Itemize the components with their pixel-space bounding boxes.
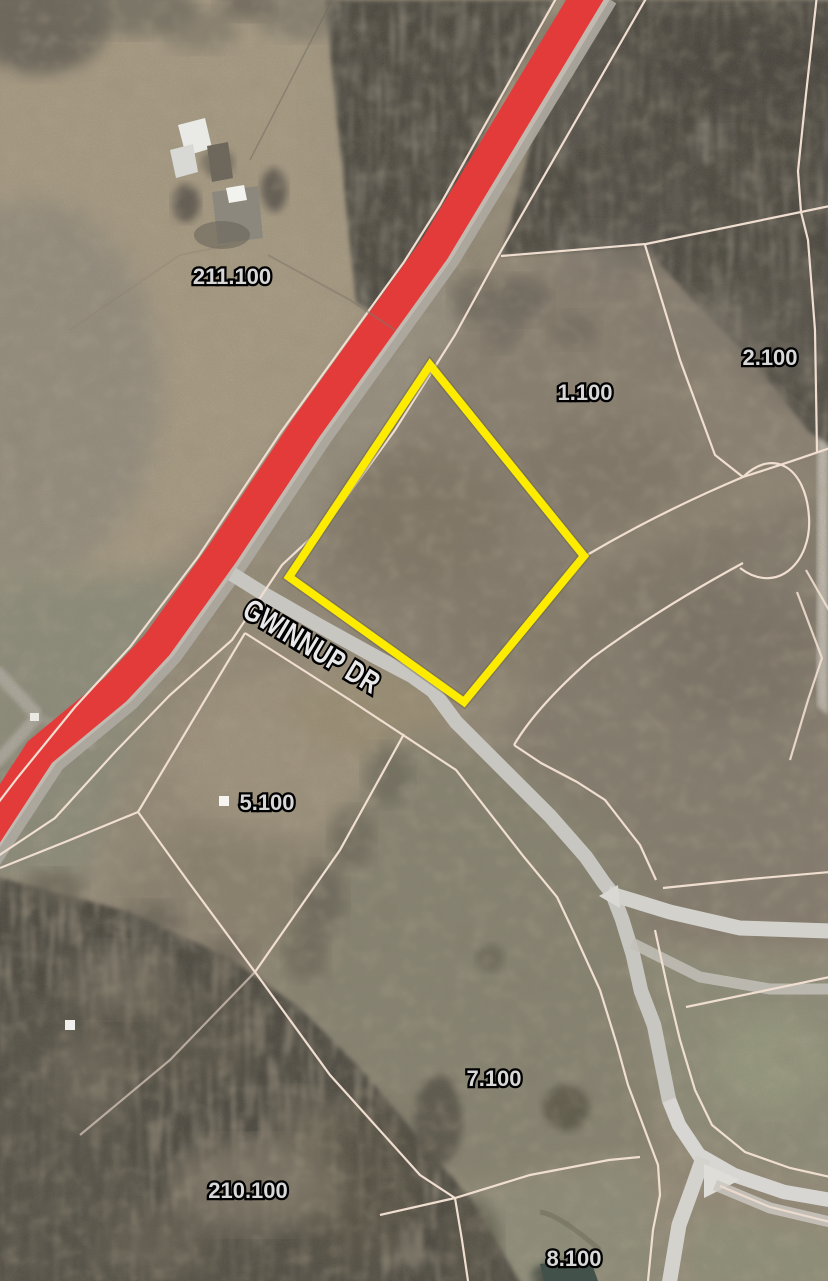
svg-text:210.100: 210.100 — [208, 1178, 288, 1203]
svg-text:211.100: 211.100 — [193, 264, 271, 289]
svg-text:5.100: 5.100 — [239, 790, 294, 815]
svg-text:7.100: 7.100 — [466, 1066, 521, 1091]
svg-text:8.100: 8.100 — [546, 1246, 601, 1271]
svg-text:1.100: 1.100 — [557, 380, 612, 405]
svg-text:2.100: 2.100 — [742, 345, 797, 370]
